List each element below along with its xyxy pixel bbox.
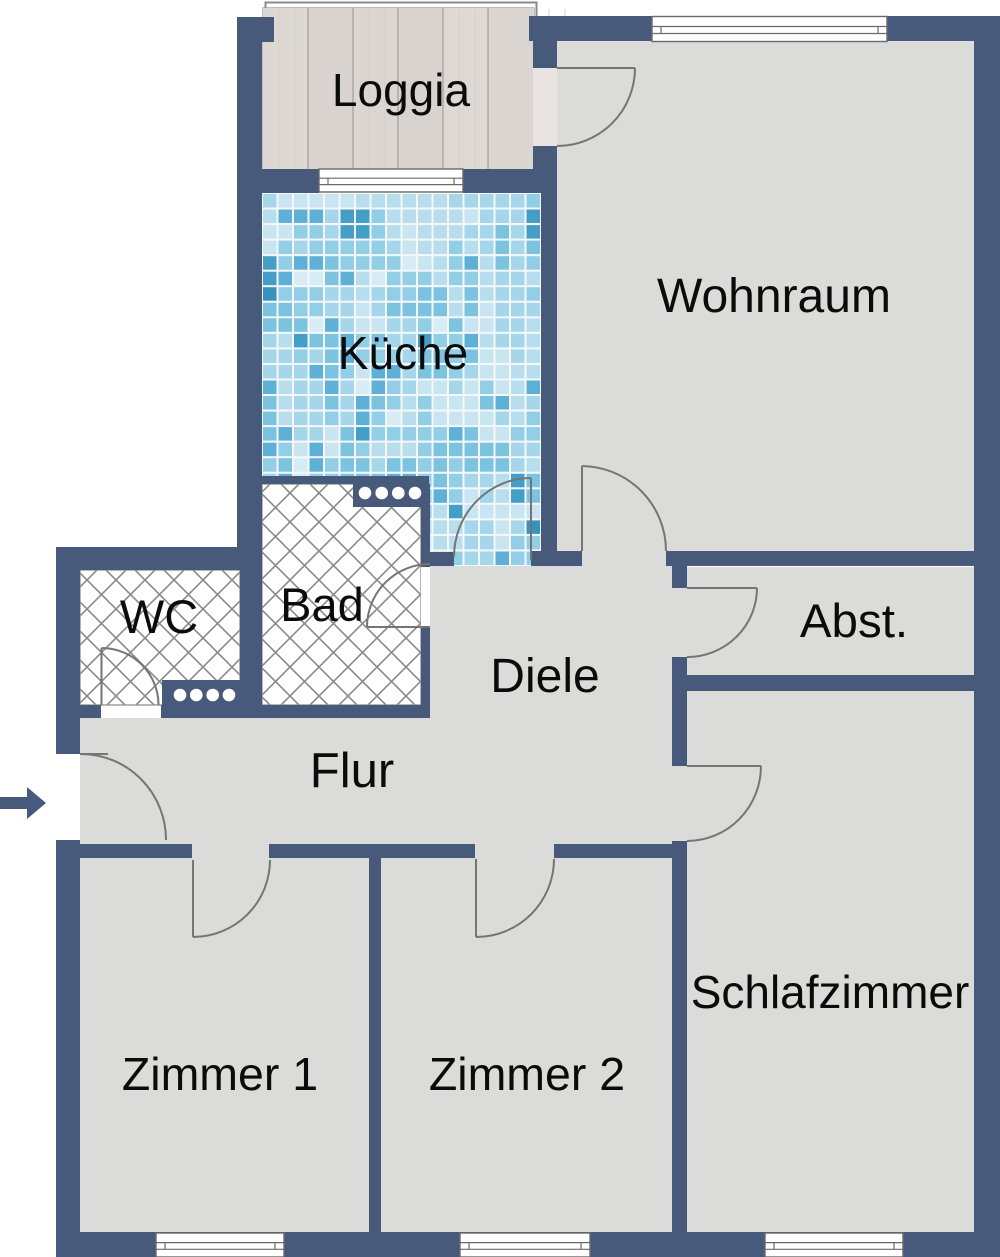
svg-text:Diele: Diele: [490, 650, 599, 703]
svg-text:Zimmer 2: Zimmer 2: [429, 1048, 625, 1100]
svg-text:Schlafzimmer: Schlafzimmer: [691, 966, 970, 1018]
svg-text:Wohnraum: Wohnraum: [657, 270, 891, 323]
svg-text:Küche: Küche: [338, 327, 468, 379]
svg-text:WC: WC: [120, 590, 198, 643]
svg-text:Loggia: Loggia: [332, 64, 471, 116]
svg-text:Bad: Bad: [280, 578, 364, 631]
svg-text:Zimmer 1: Zimmer 1: [122, 1048, 318, 1100]
svg-text:Flur: Flur: [310, 744, 394, 798]
svg-text:Abst.: Abst.: [800, 595, 908, 648]
